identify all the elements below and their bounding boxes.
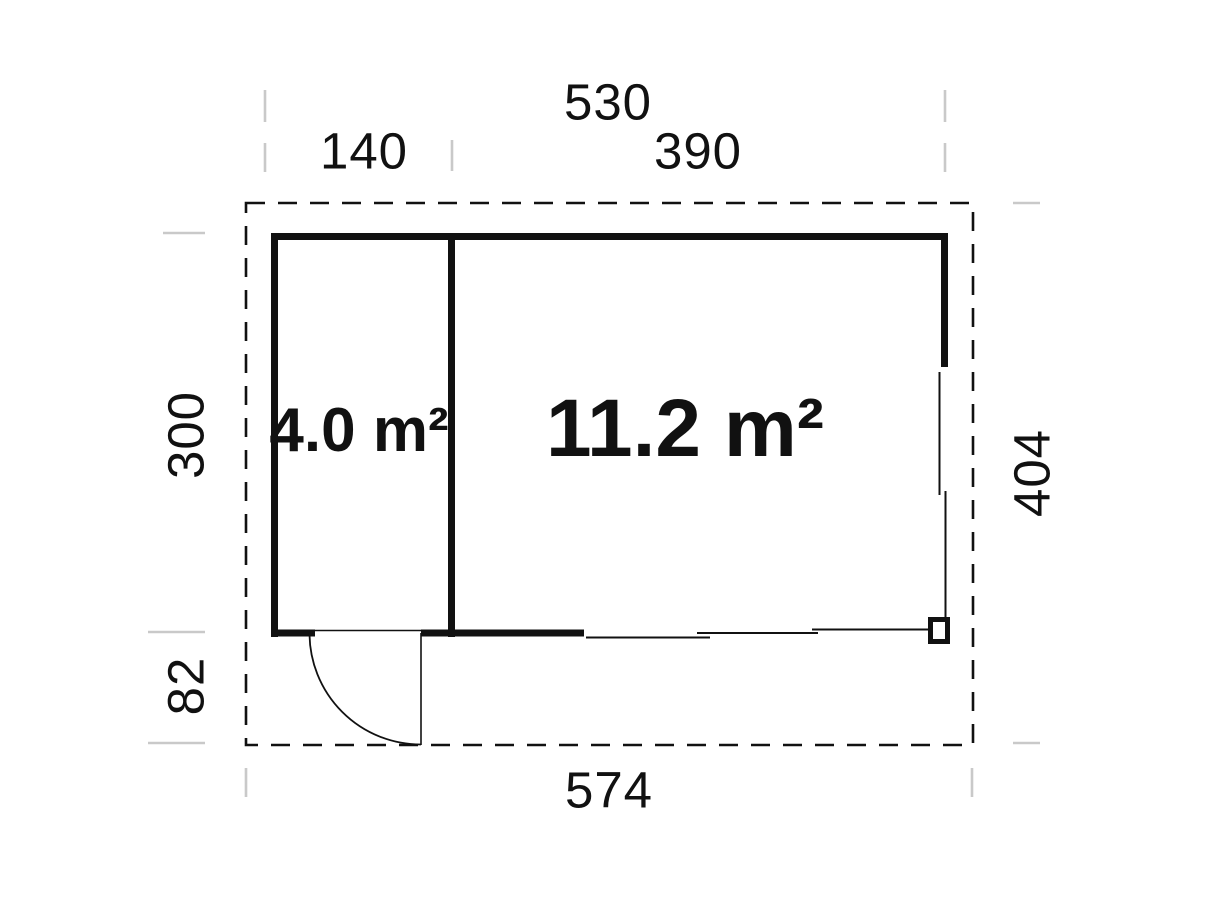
dim-label-top-left-section: 140	[320, 126, 408, 177]
room-area-label-large: 11.2 m²	[546, 388, 824, 470]
dim-label-left-lower-offset: 82	[161, 657, 212, 716]
dim-label-bottom-total: 574	[565, 765, 653, 816]
room-area-label-small: 4.0 m²	[269, 400, 448, 462]
corner-post	[931, 620, 948, 642]
door-swing-arc	[310, 633, 422, 745]
dim-label-top-total: 530	[564, 77, 652, 128]
dim-label-top-right-section: 390	[654, 126, 742, 177]
dim-label-left-room-depth: 300	[161, 391, 212, 479]
roof-outline-dashed-rect	[246, 203, 973, 745]
floor-plan-canvas: 530 140 390 300 82 404 574 4.0 m² 11.2 m…	[0, 0, 1214, 911]
dim-label-right-total-depth: 404	[1007, 429, 1058, 517]
